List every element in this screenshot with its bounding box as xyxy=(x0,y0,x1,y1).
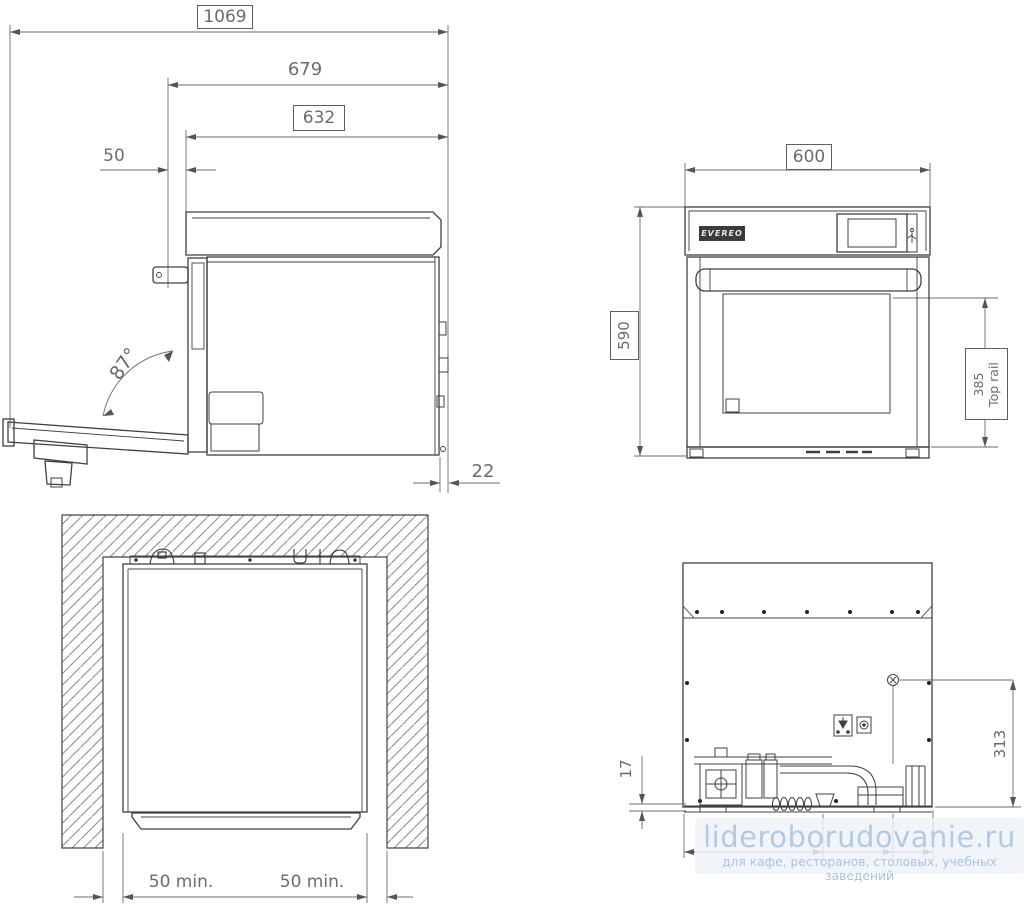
dim-height-label: 590 xyxy=(610,311,639,360)
side-view xyxy=(3,25,500,493)
rear-view xyxy=(629,563,1021,858)
watermark-site-title: lideroborudovanie.ru xyxy=(695,820,1024,854)
watermark-subtitle: для кафе, ресторанов, столовых, учебных … xyxy=(695,855,1024,883)
dim-top-rail-value: 385 xyxy=(973,362,986,407)
dim-height-value: 590 xyxy=(617,321,632,350)
dim-rear-gap-label: 22 xyxy=(463,461,503,483)
dim-left-clearance-label: 50 min. xyxy=(141,872,221,892)
technical-drawing-canvas: 1069 679 632 50 87° 22 600 590 385 Top r… xyxy=(0,0,1024,909)
usb-icon xyxy=(908,229,916,244)
dim-top-rail-text: Top rail xyxy=(988,362,1001,407)
watermark: lideroborudovanie.ru для кафе, ресторано… xyxy=(695,818,1024,874)
electrical-symbol-icon xyxy=(834,715,871,736)
dim-connector-height-label: 313 xyxy=(991,722,1009,766)
dim-width-label: 600 xyxy=(786,144,832,170)
front-view xyxy=(634,163,998,458)
dim-top-rail-label: 385 Top rail xyxy=(965,348,1008,420)
brand-logo: EVEREO xyxy=(699,226,745,241)
oven-dimension-drawing xyxy=(0,0,1024,909)
niche-view xyxy=(62,515,428,903)
dim-right-clearance-label: 50 min. xyxy=(272,872,352,892)
dim-overall-depth-label: 1069 xyxy=(197,5,253,29)
dim-depth-open-label: 679 xyxy=(282,60,328,80)
dim-body-depth-label: 632 xyxy=(293,105,345,131)
dim-bottom-gap-label: 17 xyxy=(617,752,635,786)
dim-front-offset-label: 50 xyxy=(97,146,131,166)
